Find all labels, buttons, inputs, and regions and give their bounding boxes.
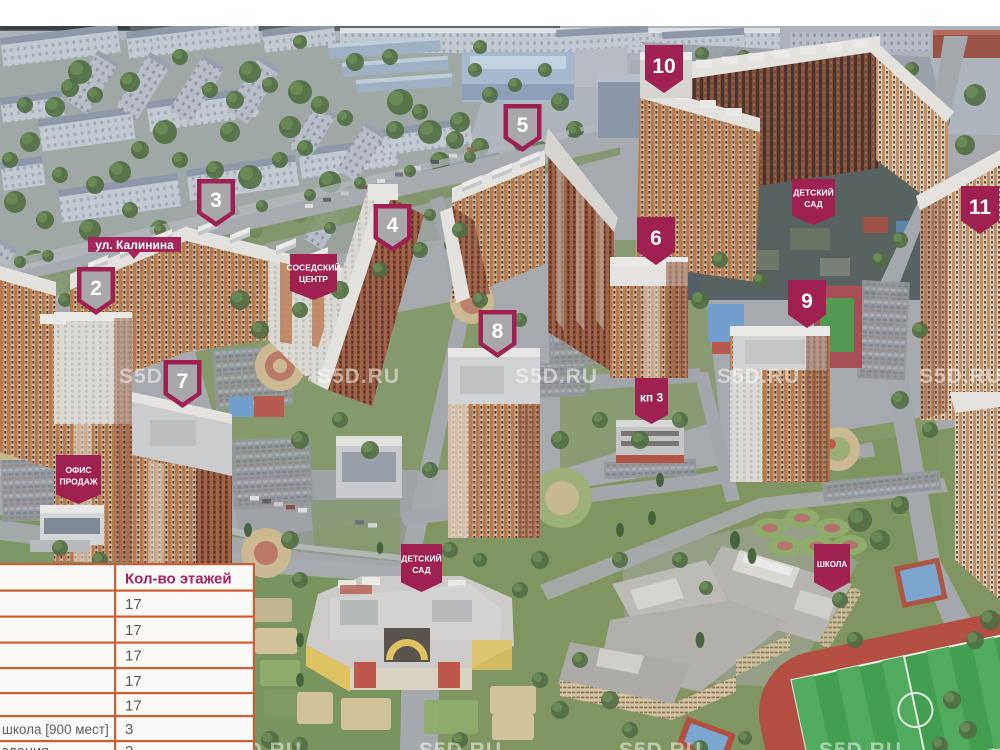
svg-text:10: 10: [652, 55, 675, 78]
svg-text:ОФИС: ОФИС: [65, 465, 91, 475]
svg-text:здания: здания: [2, 744, 49, 750]
svg-text:САД: САД: [804, 199, 822, 209]
svg-text:Кол-во этажей: Кол-во этажей: [125, 571, 232, 588]
svg-text:САД: САД: [412, 565, 430, 575]
svg-text:5: 5: [517, 114, 529, 137]
svg-text:3: 3: [210, 189, 222, 212]
svg-text:ЦЕНТР: ЦЕНТР: [299, 274, 328, 284]
svg-text:6: 6: [650, 227, 662, 250]
svg-text:4: 4: [387, 214, 399, 237]
svg-text:школа [900 мест]: школа [900 мест]: [2, 722, 109, 737]
svg-text:11: 11: [969, 196, 992, 219]
svg-text:8: 8: [492, 320, 504, 343]
svg-text:7: 7: [177, 370, 189, 393]
svg-text:S5D.RU: S5D.RU: [919, 365, 1000, 388]
svg-text:9: 9: [801, 290, 813, 313]
svg-text:17: 17: [125, 622, 142, 639]
svg-text:ШКОЛА: ШКОЛА: [817, 560, 848, 569]
svg-text:S5D.RU: S5D.RU: [819, 739, 902, 750]
svg-text:2: 2: [125, 743, 133, 750]
svg-text:17: 17: [125, 673, 142, 690]
svg-text:17: 17: [125, 648, 142, 665]
svg-text:3: 3: [125, 721, 133, 738]
svg-text:ДЕТСКИЙ: ДЕТСКИЙ: [401, 552, 441, 563]
svg-text:кп 3: кп 3: [640, 391, 664, 405]
svg-text:ПРОДАЖ: ПРОДАЖ: [59, 476, 97, 486]
svg-text:ДЕТСКИЙ: ДЕТСКИЙ: [793, 187, 833, 198]
svg-text:17: 17: [125, 596, 142, 613]
svg-text:17: 17: [125, 698, 142, 715]
svg-text:S5D.RU: S5D.RU: [619, 739, 702, 750]
svg-text:2: 2: [90, 277, 102, 300]
svg-text:СОСЕДСКИЙ: СОСЕДСКИЙ: [287, 262, 341, 273]
svg-text:S5D.RU: S5D.RU: [717, 365, 800, 388]
svg-text:S5D.RU: S5D.RU: [419, 739, 502, 750]
svg-text:S5D.RU: S5D.RU: [515, 365, 598, 388]
svg-text:S5D.RU: S5D.RU: [317, 365, 400, 388]
svg-text:ул. Калинина: ул. Калинина: [95, 238, 174, 252]
